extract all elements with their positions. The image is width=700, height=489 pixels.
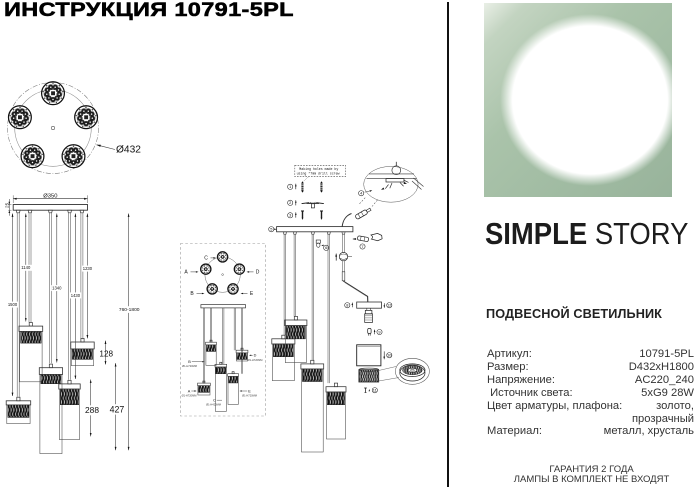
svg-text:1340: 1340 [52,286,62,291]
svg-text:6: 6 [325,245,327,250]
svg-text:Making holes made by: Making holes made by [299,167,338,171]
svg-text:Ø350: Ø350 [43,194,57,200]
svg-text:2: 2 [289,200,291,205]
svg-text:1230: 1230 [83,266,93,271]
svg-text:Ø1-H720MM: Ø1-H720MM [182,394,197,398]
svg-text:760-1800: 760-1800 [119,307,140,313]
svg-text:E: E [250,291,254,297]
svg-text:Ø1-H720MM: Ø1-H720MM [242,394,257,398]
svg-text:Ø432: Ø432 [116,145,141,156]
svg-text:288: 288 [85,405,99,415]
svg-text:3: 3 [289,213,291,218]
svg-text:C: C [213,399,216,403]
svg-text:9: 9 [378,329,380,334]
svg-text:25: 25 [5,202,10,208]
svg-text:B: B [188,360,191,364]
svg-text:128: 128 [99,349,113,358]
svg-text:8: 8 [346,303,348,308]
svg-text:D: D [256,270,260,276]
svg-text:using *7mm drill screw: using *7mm drill screw [297,171,340,175]
svg-text:D: D [254,354,257,358]
svg-text:Ø1-H720MM: Ø1-H720MM [182,364,197,368]
svg-text:Ø1-H720MM: Ø1-H720MM [248,358,263,362]
svg-text:12: 12 [387,303,391,308]
svg-text:1430: 1430 [71,293,81,298]
svg-text:7: 7 [361,244,363,249]
svg-text:427: 427 [110,404,125,414]
svg-text:11: 11 [373,388,377,393]
svg-text:B: B [190,291,194,297]
svg-text:E: E [248,389,251,393]
svg-text:C: C [204,256,208,262]
svg-text:A: A [188,389,191,393]
svg-text:1: 1 [289,184,291,189]
svg-text:1500: 1500 [8,302,18,307]
svg-text:A: A [184,270,188,276]
svg-text:Ø1-H420MM: Ø1-H420MM [206,403,221,407]
svg-text:5: 5 [270,227,272,232]
svg-text:1140: 1140 [21,265,31,270]
